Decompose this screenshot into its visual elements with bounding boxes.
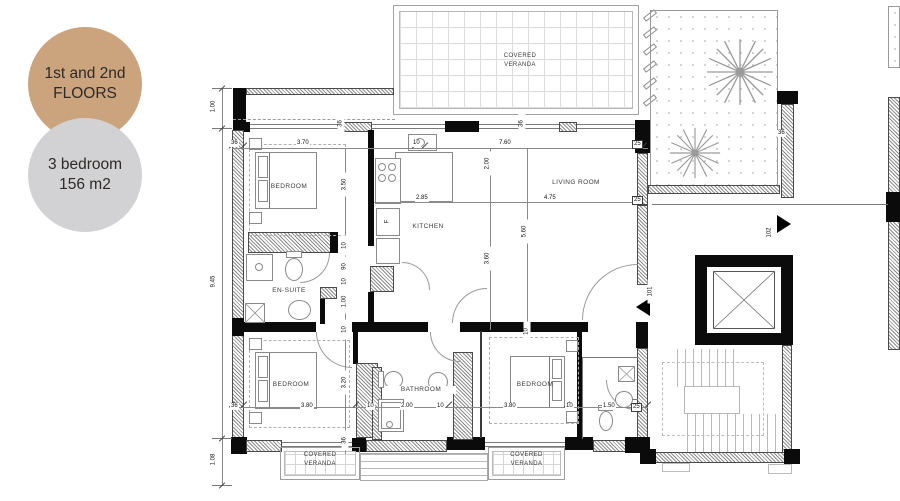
dim-label: 1.00 — [342, 290, 349, 314]
dim-label: 36 — [230, 403, 239, 410]
burner — [388, 163, 396, 171]
wall — [648, 185, 780, 194]
wall — [777, 91, 798, 104]
nightstand — [249, 212, 262, 224]
dim-label: 4.75 — [543, 195, 557, 202]
floors-badge-line2: FLOORS — [53, 84, 117, 104]
dim-label: 9.45 — [211, 270, 218, 294]
room-label-bedroom3: BEDROOM — [505, 381, 565, 389]
garden-steps — [360, 453, 488, 481]
dim-label: 36 — [519, 114, 526, 134]
room-label-bathroom: BATHROOM — [386, 386, 456, 394]
nightstand — [249, 338, 262, 350]
dim-label: 36 — [342, 431, 349, 451]
wall — [232, 318, 244, 336]
tree-icon — [666, 124, 724, 182]
burner — [378, 163, 386, 171]
pillow — [552, 359, 562, 379]
dim-label: 1.00 — [211, 95, 218, 119]
sink-tap — [632, 399, 638, 400]
pillow — [258, 356, 268, 378]
dim-label: 10 — [524, 322, 531, 342]
dim-line — [232, 148, 648, 149]
dim-label: 10 — [342, 272, 349, 292]
unit-badge: 3 bedroom 156 m2 — [28, 118, 142, 232]
kitchen-unit — [376, 238, 400, 264]
roof-overhang-line — [233, 119, 395, 120]
dim-label: 3.60 — [485, 247, 492, 271]
veranda-top-label-1: COVERED — [455, 52, 585, 60]
wall — [593, 440, 627, 452]
pillow — [258, 156, 268, 178]
veranda-br-label-1: COVERED — [488, 451, 565, 459]
room-label-bedroom1: BEDROOM — [259, 183, 319, 191]
veranda-top-deck — [399, 11, 633, 109]
door-101-label: 101 — [648, 280, 655, 304]
tree-icon — [702, 34, 778, 110]
dim-label: 2.00 — [400, 403, 414, 410]
door-arc — [430, 332, 460, 362]
dim-label: 7.60 — [498, 140, 512, 147]
sink — [288, 300, 311, 320]
window — [372, 124, 445, 129]
cabinet-icon — [618, 366, 635, 382]
wall — [782, 345, 792, 453]
dim-label: 5.60 — [522, 220, 529, 244]
floor-plan-page: 1st and 2nd FLOORS 3 bedroom 156 m2 COVE… — [0, 0, 900, 501]
bed-line — [269, 153, 270, 208]
wall — [320, 299, 325, 324]
wall — [353, 332, 358, 364]
wall — [246, 440, 282, 452]
garden-edge — [888, 6, 900, 68]
dim-line — [222, 88, 223, 485]
dim-label: 3.70 — [296, 140, 310, 147]
door-102-marker — [777, 215, 791, 233]
veranda-top-label-2: VERANDA — [455, 61, 585, 69]
dim-line — [374, 202, 640, 203]
dim-label: 1.08 — [211, 448, 218, 472]
dim-label: 36 — [338, 114, 345, 134]
dim-label: 36 — [777, 130, 786, 137]
wall — [625, 437, 640, 453]
dim-label: 2.00 — [485, 152, 492, 176]
dim-label: 10 — [342, 236, 349, 256]
dim-label: 3.80 — [300, 403, 314, 410]
wall — [582, 357, 638, 358]
toilet — [599, 411, 613, 431]
veranda-br-label-2: VERANDA — [488, 460, 565, 468]
dim-label: 36 — [230, 140, 239, 147]
wall — [637, 348, 648, 438]
wall — [636, 322, 648, 348]
bathtub-drain — [386, 421, 393, 428]
entry-step — [768, 464, 792, 474]
dim-label: 10 — [366, 403, 375, 410]
room-label-living: LIVING ROOM — [536, 179, 616, 187]
lobby-line — [652, 204, 888, 205]
wall — [559, 122, 577, 132]
nightstand — [566, 411, 578, 423]
burner — [378, 174, 386, 182]
toilet-tank — [286, 251, 302, 258]
dim-label: 2.85 — [415, 195, 429, 202]
wall — [637, 205, 648, 285]
staircase-path — [662, 362, 764, 436]
dim-label: 3.20 — [342, 371, 349, 395]
wall — [246, 88, 394, 95]
wall — [480, 331, 482, 438]
wall — [453, 352, 473, 440]
dim-label: 3.80 — [503, 403, 517, 410]
entry-door-arc — [582, 264, 638, 320]
room-label-kitchen: KITCHEN — [398, 223, 458, 231]
burner — [388, 174, 396, 182]
dim-label: 25 — [632, 140, 643, 149]
floors-badge-line1: 1st and 2nd — [44, 64, 125, 84]
elevator-icon — [713, 271, 775, 329]
door-arc — [402, 262, 430, 290]
wall — [231, 437, 247, 454]
door-arc — [300, 253, 330, 283]
unit-badge-line1: 3 bedroom — [48, 155, 122, 175]
window — [250, 124, 342, 129]
wall — [582, 357, 583, 439]
kitchen-cupboard — [370, 266, 394, 292]
cabinet-icon — [245, 303, 265, 323]
wall — [366, 440, 447, 452]
dim-label: 10 — [412, 140, 421, 147]
entry-step — [662, 463, 690, 472]
wall — [888, 97, 900, 350]
wall — [445, 121, 479, 132]
wall — [352, 322, 428, 332]
shower-drain — [255, 263, 263, 271]
door-102-label: 102 — [767, 221, 774, 245]
wall — [886, 192, 900, 222]
dim-label: 10 — [565, 403, 574, 410]
dim-label: 25 — [631, 403, 642, 412]
veranda-bl-label-2: VERANDA — [280, 460, 360, 468]
unit-badge-line2: 156 m2 — [59, 175, 111, 195]
nightstand — [249, 412, 262, 424]
wall — [781, 104, 794, 198]
fridge-label: F — [385, 212, 392, 232]
window — [577, 124, 635, 129]
wall — [368, 292, 374, 324]
wall — [320, 287, 337, 299]
dim-label: 3.50 — [342, 173, 349, 197]
dim-label: 25 — [632, 196, 643, 205]
dim-label: 10 — [342, 320, 349, 340]
wall — [654, 452, 786, 463]
toilet — [285, 258, 303, 281]
dim-label: 1.50 — [602, 403, 616, 410]
veranda-bl-label-1: COVERED — [280, 451, 360, 459]
wall — [244, 322, 316, 332]
door-arc — [452, 288, 487, 323]
dim-label: 10 — [436, 403, 445, 410]
nightstand — [566, 340, 578, 352]
wall — [784, 449, 800, 464]
room-label-bedroom2: BEDROOM — [261, 381, 321, 389]
room-label-ensuite: EN-SUITE — [259, 287, 319, 295]
